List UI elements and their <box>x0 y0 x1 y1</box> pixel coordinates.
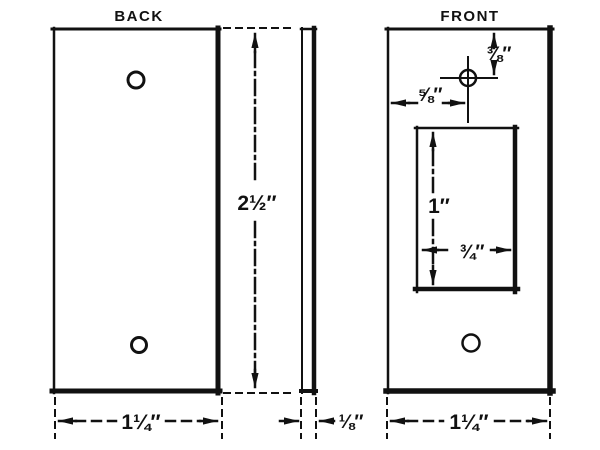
hole-left-offset-label: ⅝″ <box>418 85 443 106</box>
back-title: BACK <box>114 8 163 25</box>
back-top-hole <box>128 72 144 88</box>
hole-left-offset-dimension: ⅝″ <box>392 85 464 106</box>
back-view: BACK <box>52 8 220 393</box>
side-thickness-dimension: ⅛″ <box>280 398 363 438</box>
back-width-dimension: 1¼″ <box>55 398 222 438</box>
front-width-dimension: 1¼″ <box>387 398 550 438</box>
side-view <box>301 28 316 393</box>
cutout-width-dimension: ¾″ <box>423 242 510 263</box>
front-width-label: 1¼″ <box>449 411 488 434</box>
front-view: FRONT <box>386 8 553 393</box>
cutout-height-dimension: 1″ <box>428 133 450 284</box>
cutout-height-label: 1″ <box>428 195 450 218</box>
front-bottom-hole <box>463 335 480 352</box>
cutout-width-label: ¾″ <box>460 242 485 263</box>
front-title: FRONT <box>440 8 499 25</box>
back-height-dimension: 2½″ <box>224 28 292 393</box>
back-bottom-hole <box>132 338 147 353</box>
side-thickness-label: ⅛″ <box>339 412 364 433</box>
hole-top-offset-dimension: ⅜″ <box>487 34 512 74</box>
back-width-label: 1¼″ <box>121 411 160 434</box>
back-height-label: 2½″ <box>237 192 276 215</box>
technical-drawing: BACK 2½″ 1¼″ <box>0 0 600 450</box>
drawing-canvas: BACK 2½″ 1¼″ <box>0 0 600 450</box>
hole-top-offset-label: ⅜″ <box>487 44 512 65</box>
